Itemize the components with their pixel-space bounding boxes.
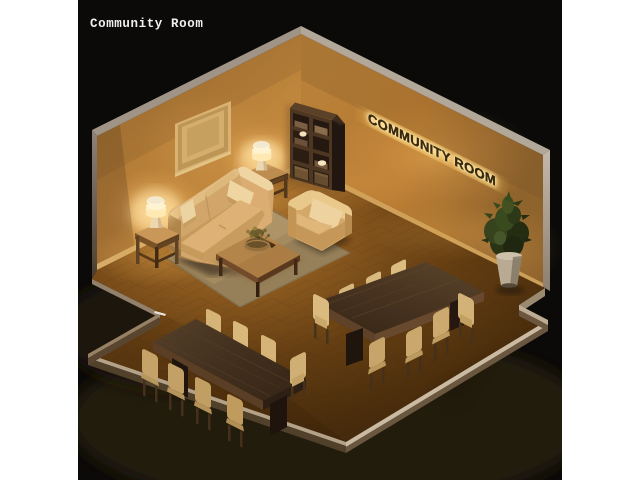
svg-text:Community Room: Community Room bbox=[90, 17, 203, 31]
